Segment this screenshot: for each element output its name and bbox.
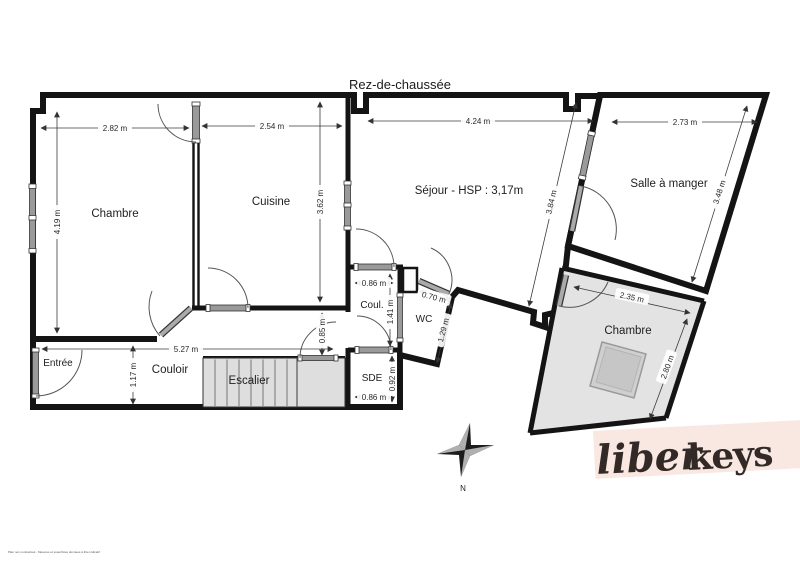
label-coul: Coul.: [360, 300, 383, 311]
label-salle-a-manger: Salle à manger: [630, 178, 708, 190]
dim-couloir-height: 1.17 m: [129, 362, 138, 387]
dim-cuisine-width: 2.54 m: [260, 122, 285, 131]
label-cuisine: Cuisine: [252, 196, 290, 208]
label-entree: Entrée: [43, 358, 73, 369]
dim-sejour-diagonal: 3.84 m: [544, 189, 558, 215]
staircase: [203, 358, 345, 407]
dim-chambre1-width: 2.82 m: [103, 124, 128, 133]
dim-sde-height: 0.92 m: [388, 366, 397, 391]
floorplan-page: 2.82 m 2.54 m 4.19 m 3.62 m 4.24 m 3.84 …: [0, 0, 800, 566]
compass-icon: N: [437, 423, 494, 493]
window-cuisine-right: [344, 181, 351, 230]
dim-wc-height: 1.29 m: [436, 317, 451, 343]
dim-coul-width: 0.86 m: [362, 279, 387, 288]
window-sejour-sam: [578, 131, 595, 180]
door-wc: [419, 248, 452, 294]
dim-sam-width: 2.73 m: [673, 118, 698, 127]
label-wc: WC: [416, 314, 433, 325]
logo-text-bold: keys: [686, 433, 773, 479]
door-cuisine: [206, 268, 250, 312]
dim-sde-width: 0.86 m: [362, 393, 387, 402]
window-chambre1-left: [29, 184, 36, 253]
door-chambre1-couloir: [149, 291, 191, 336]
label-couloir: Couloir: [152, 364, 189, 376]
compass-north-label: N: [460, 484, 466, 493]
door-chambre1-cuisine: [158, 102, 200, 143]
door-coul-wc: [397, 293, 403, 342]
label-escalier: Escalier: [229, 375, 270, 387]
label-chambre-1: Chambre: [91, 208, 138, 220]
dim-cuisine-height: 3.62 m: [316, 189, 325, 214]
dim-chambre1-height: 4.19 m: [53, 209, 62, 234]
dim-sam-height: 3.48 m: [711, 179, 727, 205]
doors: [32, 102, 616, 398]
dim-passage-height: 0.85 m: [318, 318, 327, 343]
dim-sejour-width: 4.24 m: [466, 117, 491, 126]
floorplan-drawing: 2.82 m 2.54 m 4.19 m 3.62 m 4.24 m 3.84 …: [0, 0, 800, 566]
plan-disclaimer: Plan non contractuel - Mesures et superf…: [8, 550, 100, 554]
label-sejour: Séjour - HSP : 3,17m: [415, 185, 523, 197]
label-sde: SDE: [362, 373, 383, 384]
liberkeys-logo: liber keys: [593, 420, 800, 484]
door-coul-sejour: [354, 229, 396, 271]
dim-couloir-width: 5.27 m: [174, 345, 199, 354]
dim-coul-height: 1.41 m: [386, 299, 395, 324]
pillar: [403, 268, 417, 292]
door-salle-a-manger: [572, 186, 616, 240]
door-entree: [32, 348, 82, 398]
label-chambre-2: Chambre: [604, 325, 651, 337]
page-title: Rez-de-chaussée: [349, 77, 451, 92]
